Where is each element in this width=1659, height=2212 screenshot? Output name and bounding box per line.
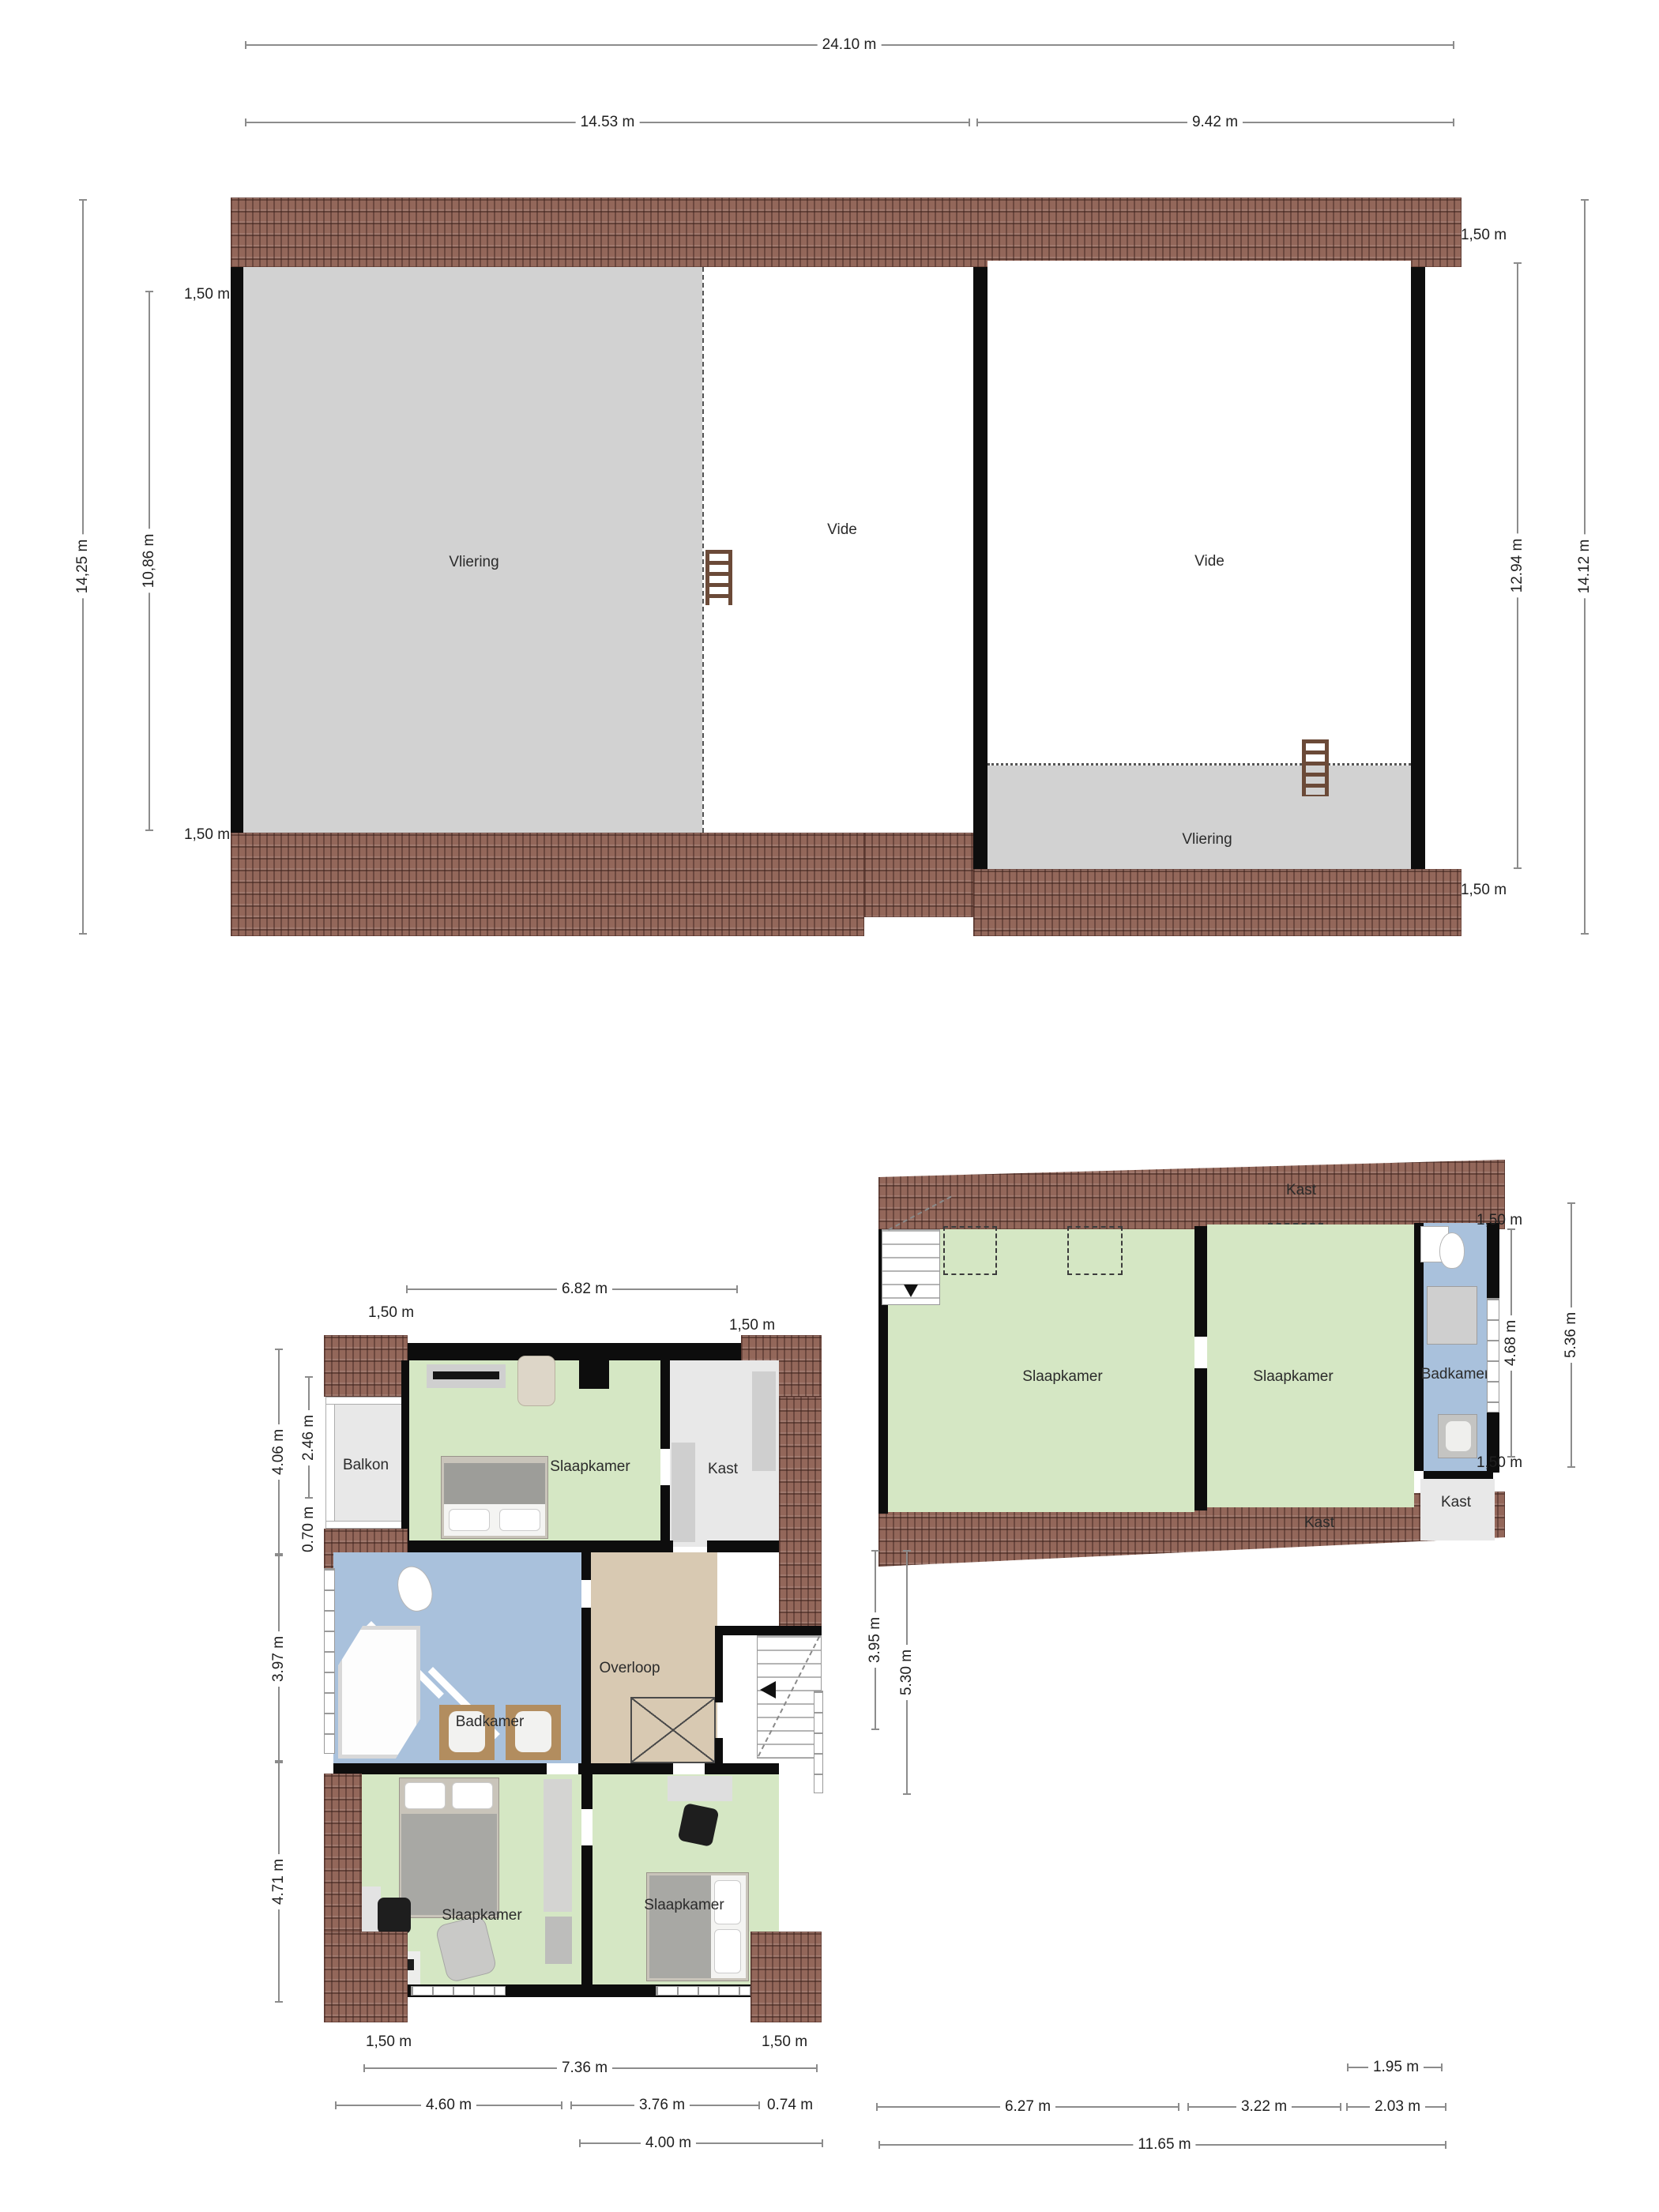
dim-label-eave-br: 1,50 m [1456,882,1511,899]
dim-label-f1-b3: 4.00 m [641,2135,696,2152]
dim-label-left-outer: 14,25 m [74,535,92,599]
f2-stairs-arrow-icon [904,1285,918,1297]
room-label-kast-top: Kast [708,1461,738,1478]
room-label-f2-slaapkamer-right: Slaapkamer [1253,1368,1333,1386]
dim-label-f1-left1: 4.06 m [270,1424,288,1480]
floorplan-page: 24.10 m 14.53 m 9.42 m 14,25 m 10,86 m 1… [0,0,1659,2212]
wardrobe [544,1779,572,1912]
room-label-slaapkamer-right: Slaapkamer [644,1897,724,1914]
dim-label-f2-eave-tr: 1,50 m [1472,1212,1527,1229]
pillow [499,1509,540,1531]
room-vliering-right [987,766,1411,869]
f1-lower-wall-b [578,1763,673,1774]
ladder-icon-right [1302,739,1329,796]
f2-kast-top-wall [1424,1471,1493,1479]
f1-roof-corner-br [750,1932,822,2022]
dim-label-f2-b0: 1.95 m [1368,2059,1424,2076]
window-bottom-left [411,1986,506,1996]
f2-roof-strip-top [878,1160,1505,1229]
f1-center-wall-a [581,1774,592,1809]
sink-icon [1438,1414,1477,1458]
room-label-badkamer: Badkamer [456,1714,525,1731]
dim-label-f2-eave-br: 1,50 m [1472,1454,1527,1472]
room-label-vliering-left: Vliering [449,554,498,571]
wardrobe [752,1371,776,1471]
f1-wall-sk-kast-a [660,1360,670,1449]
room-vide-right [987,261,1411,763]
room-vide-left [704,267,970,833]
f1-mid-wall-b [707,1540,779,1552]
flue-box [579,1360,609,1389]
skylight-icon [943,1226,997,1275]
room-label-overloop: Overloop [599,1660,660,1677]
desk-chair-icon [378,1898,411,1934]
f1-wall-sk-kast-b [660,1485,670,1547]
dim-label-f2-left-inner: 3.95 m [867,1612,884,1668]
attic-right-building-right-wall [1411,267,1425,869]
f1-center-wall-b [581,1845,592,1991]
f2-mid-wall-a [1194,1226,1207,1337]
dim-label-f2-b1c: 2.03 m [1370,2098,1425,2116]
f1-wall-bk-ol-b [581,1608,591,1763]
desk [668,1776,732,1801]
dim-label-f1-b1: 7.36 m [557,2060,612,2077]
balkon-wall-bottom [325,1521,408,1529]
dim-label-f1-b2b: 3.76 m [634,2097,690,2114]
roof-strip-bottom-left [231,833,864,936]
ladder-icon [705,550,732,605]
shower-icon [1427,1286,1477,1345]
dim-label-f1-b2a: 4.60 m [421,2097,476,2114]
f1-mid-wall-a [408,1540,673,1552]
dim-line-f1-b3 [579,2142,823,2144]
room-label-slaapkamer-top: Slaapkamer [550,1458,630,1476]
room-label-f2-badkamer: Badkamer [1421,1366,1490,1383]
room-label-kast-roof-bottom: Kast [1304,1514,1334,1532]
dim-label-right-width: 9.42 m [1187,114,1243,131]
roof-strip-bottom-left-step [864,833,973,917]
dim-label-f2-b1b: 3.22 m [1236,2098,1292,2116]
dim-label-left-inner: 10,86 m [141,529,158,593]
room-vliering-left [243,267,702,833]
f1-wall-sk-balkon [401,1360,409,1547]
f1-wall-bk-ol-a [581,1552,591,1580]
f1-top-wall [408,1343,741,1360]
dim-label-right-inner: 12.94 m [1509,534,1526,598]
dim-label-left-width: 14.53 m [576,114,640,131]
window-left [324,1568,335,1754]
f1-vide-top-wall [715,1626,822,1635]
dim-label-f1-left4: 3.97 m [270,1631,288,1687]
tv-icon [433,1371,499,1379]
window-bottom-right [656,1986,750,1996]
f2-window-right [1487,1298,1499,1413]
shaft-icon [630,1697,716,1763]
dim-label-right-outer: 14.12 m [1576,535,1593,599]
dim-label-f2-b1a: 6.27 m [1000,2098,1055,2116]
roof-strip-bottom-right [973,869,1461,936]
attic-right-building-left-wall [973,267,987,869]
balkon-wall-left [325,1397,335,1529]
pillow [452,1782,493,1809]
wardrobe [545,1917,572,1964]
toilet-icon [1439,1232,1465,1269]
room-label-f2-slaapkamer-left: Slaapkamer [1022,1368,1102,1386]
room-label-vide-right: Vide [1194,553,1224,570]
f1-roof-corner-bl [324,1932,408,2022]
roof-strip-top [231,197,1461,267]
balkon-wall-top [325,1397,408,1405]
f1-wall-ol-vide-a [715,1635,723,1702]
dim-label-eave-tl: 1,50 m [179,286,235,303]
f2-mid-wall-b [1194,1368,1207,1510]
room-label-vliering-right: Vliering [1182,831,1232,848]
dim-label-eave-tr: 1,50 m [1456,227,1511,244]
dim-label-f1-eave-br: 1,50 m [757,2033,812,2051]
skylight-icon [1067,1226,1123,1275]
dim-label-f1-left5: 4.71 m [270,1854,288,1909]
dim-label-eave-bl: 1,50 m [179,826,235,844]
bed-top-duvet [444,1463,545,1504]
bed-left-duvet [401,1814,497,1915]
dim-label-f1-b2c: 0.74 m [762,2097,818,2114]
bed-right-duvet [649,1875,711,1978]
f1-lower-wall-c [705,1763,779,1774]
f1-wall-ol-vide-b [715,1738,723,1763]
stairs-arrow-icon [760,1681,776,1698]
dim-label-f1-eave-tl: 1,50 m [363,1304,419,1322]
room-f2-slaapkamer-right [1207,1224,1414,1507]
dim-label-f2-left-outer: 5.30 m [898,1645,916,1700]
dim-label-f1-eave-bl: 1,50 m [361,2033,416,2051]
window-right [814,1691,823,1793]
dim-label-f1-eave-tr: 1,50 m [724,1317,780,1334]
room-label-balkon: Balkon [343,1457,389,1474]
f2-right-wall-a [1487,1223,1499,1298]
pillow [404,1782,446,1809]
pillow [449,1509,490,1531]
room-label-vide-left: Vide [827,521,857,539]
room-label-f2-kast-mid: Kast [1441,1494,1471,1511]
room-label-kast-roof-top: Kast [1286,1182,1316,1199]
pillow [714,1929,741,1973]
attic-left-wall [231,267,243,833]
dim-label-f1-top: 6.82 m [557,1281,612,1298]
dim-label-f2-right-outer: 5.36 m [1563,1307,1580,1363]
dim-label-f2-b2: 11.65 m [1133,2136,1195,2154]
dim-label-f1-left3: 0.70 m [300,1502,318,1557]
sink-basin [1446,1421,1471,1451]
dim-label-f1-left2: 2.46 m [300,1410,318,1465]
dim-label-total-width: 24.10 m [818,36,882,54]
f1-roof-strip-right [779,1397,822,1634]
dim-label-f2-right-inner: 4.68 m [1503,1315,1520,1371]
f1-lower-wall-a [333,1763,547,1774]
chair-icon [517,1356,555,1406]
f1-roof-corner-tl [324,1335,408,1397]
room-label-slaapkamer-left: Slaapkamer [442,1907,521,1924]
wardrobe [671,1443,695,1542]
